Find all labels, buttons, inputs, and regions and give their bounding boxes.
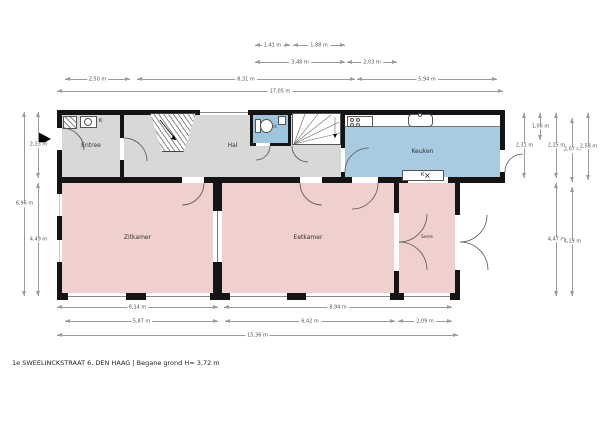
dimension-label: 1,06 m	[530, 124, 552, 130]
dimension-label: 5,94 m	[416, 77, 438, 83]
dimension-label: 8,31 m	[235, 77, 257, 83]
dimensions-layer: 1,41 m1,88 m3,48 m2,03 m2,50 m8,31 m5,94…	[0, 0, 600, 424]
dimension-label: 6,42 m	[299, 319, 321, 325]
floorplan: EntreeHalToiletKeukenZitkamerEetkamerSer…	[0, 0, 600, 424]
dimension-line: 4,29 m	[572, 187, 573, 296]
dimension-line: 2,07 m	[572, 118, 573, 182]
dimension-line: 17,05 m	[57, 91, 503, 92]
dimension-line: 1,88 m	[293, 45, 345, 46]
dimension-label: 15,36 m	[245, 333, 270, 339]
dimension-line: 2,25 m	[556, 113, 557, 178]
dimension-label: 2,31 m	[514, 143, 536, 149]
dimension-line: 2,33 m	[38, 112, 39, 178]
dimension-line: 15,36 m	[57, 335, 458, 336]
dimension-line: 4,47 m	[556, 183, 557, 296]
dimension-label: 1,41 m	[262, 43, 284, 49]
dimension-line: 1,41 m	[255, 45, 290, 46]
dimension-label: 5,87 m	[131, 319, 153, 325]
dimension-line: 2,03 m	[347, 62, 397, 63]
dimension-line: 2,58 m	[588, 113, 589, 180]
dimension-label: 6,14 m	[127, 305, 149, 311]
dimension-line: 2,31 m	[524, 113, 525, 178]
dimension-label: 2,09 m	[414, 319, 436, 325]
dimension-line: 6,14 m	[57, 307, 218, 308]
dimension-label: 2,50 m	[87, 77, 109, 83]
dimension-label: 1,88 m	[308, 43, 330, 49]
dimension-label: 3,48 m	[289, 60, 311, 66]
dimension-line: 5,87 m	[65, 321, 218, 322]
dimension-line: 4,49 m	[38, 183, 39, 296]
dimension-label: 4,29 m	[562, 239, 584, 245]
dimension-label: 6,96 m	[14, 201, 36, 207]
dimension-label: 4,49 m	[28, 237, 50, 243]
dimension-label: 2,03 m	[361, 60, 383, 66]
dimension-line: 5,94 m	[357, 79, 497, 80]
dimension-label: 2,58 m	[578, 144, 600, 150]
dimension-label: 17,05 m	[268, 89, 293, 95]
dimension-line: 6,42 m	[225, 321, 395, 322]
dimension-line: 3,48 m	[255, 62, 345, 63]
dimension-label: 2,33 m	[28, 142, 50, 148]
dimension-label: 8,94 m	[327, 305, 349, 311]
dimension-line: 1,06 m	[540, 113, 541, 140]
dimension-line: 6,96 m	[24, 112, 25, 296]
dimension-line: 2,50 m	[65, 79, 130, 80]
dimension-line: 8,94 m	[224, 307, 452, 308]
dimension-line: 8,31 m	[137, 79, 355, 80]
dimension-line: 2,09 m	[398, 321, 452, 322]
